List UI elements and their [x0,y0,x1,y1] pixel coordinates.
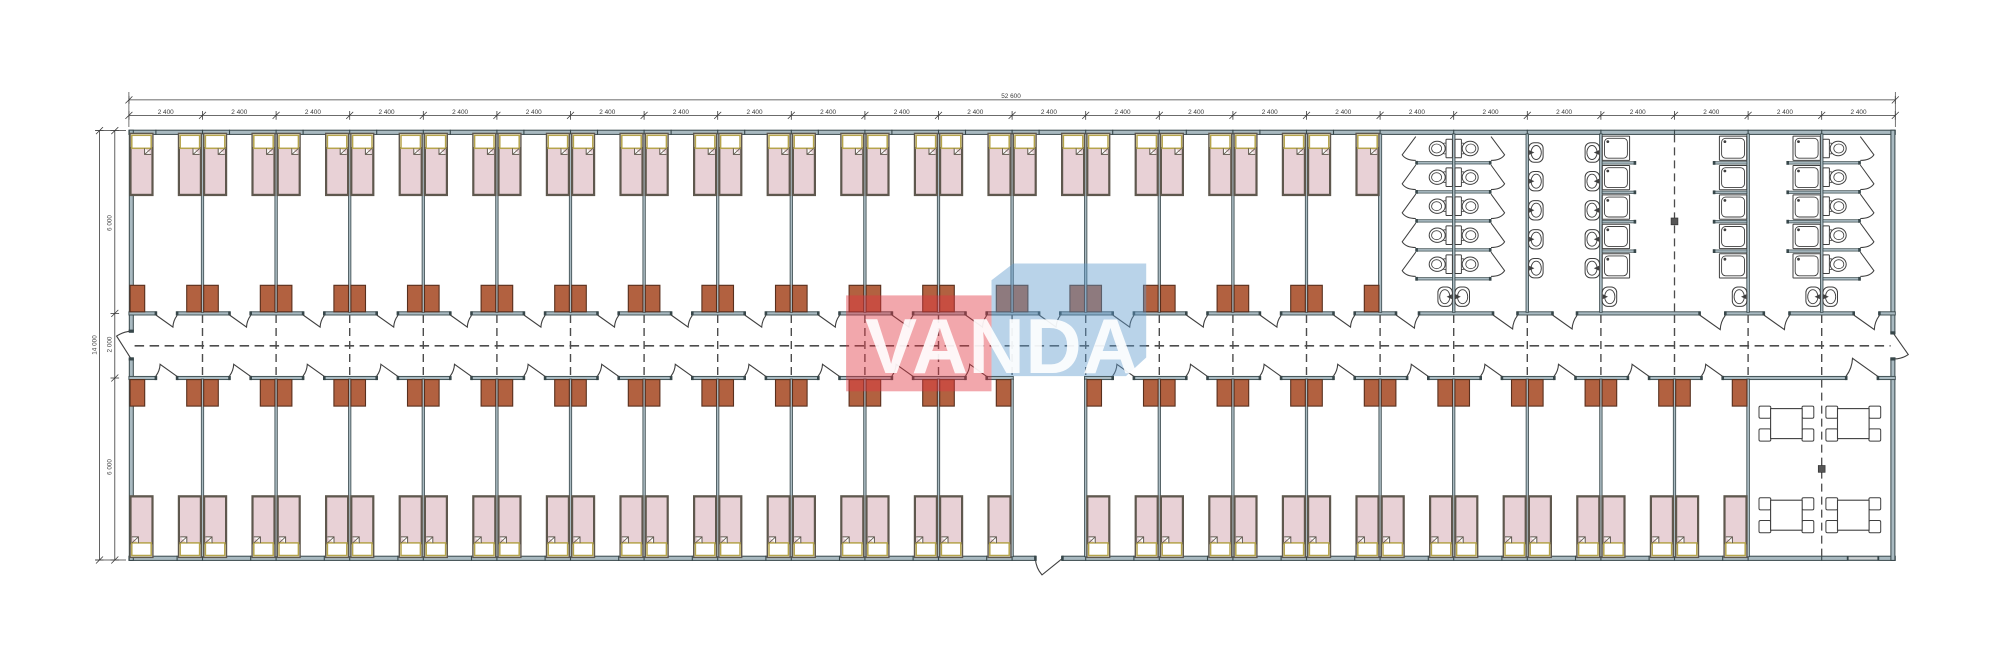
svg-text:2 400: 2 400 [1483,109,1499,116]
svg-text:2 400: 2 400 [1041,109,1057,116]
svg-text:2 400: 2 400 [673,109,689,116]
svg-text:2 400: 2 400 [1188,109,1204,116]
svg-text:2 400: 2 400 [526,109,542,116]
svg-text:2 400: 2 400 [305,109,321,116]
svg-text:2 400: 2 400 [1556,109,1572,116]
svg-text:2 400: 2 400 [894,109,910,116]
svg-text:2 400: 2 400 [1409,109,1425,116]
svg-text:2 400: 2 400 [967,109,983,116]
svg-text:2 400: 2 400 [1262,109,1278,116]
svg-text:6 000: 6 000 [107,459,114,475]
svg-text:6 000: 6 000 [107,215,114,231]
svg-text:2 400: 2 400 [1851,109,1867,116]
svg-text:2 400: 2 400 [820,109,836,116]
svg-text:2 400: 2 400 [158,109,174,116]
svg-text:2 400: 2 400 [231,109,247,116]
svg-text:2 000: 2 000 [107,336,114,352]
svg-text:2 400: 2 400 [379,109,395,116]
svg-text:2 400: 2 400 [747,109,763,116]
svg-text:2 400: 2 400 [1115,109,1131,116]
svg-text:VANDA: VANDA [865,302,1139,390]
svg-text:2 400: 2 400 [1630,109,1646,116]
svg-text:2 400: 2 400 [452,109,468,116]
svg-text:52 600: 52 600 [1001,93,1021,100]
svg-text:14 000: 14 000 [91,335,98,355]
svg-text:2 400: 2 400 [599,109,615,116]
svg-text:2 400: 2 400 [1335,109,1351,116]
svg-text:2 400: 2 400 [1777,109,1793,116]
svg-text:2 400: 2 400 [1703,109,1719,116]
